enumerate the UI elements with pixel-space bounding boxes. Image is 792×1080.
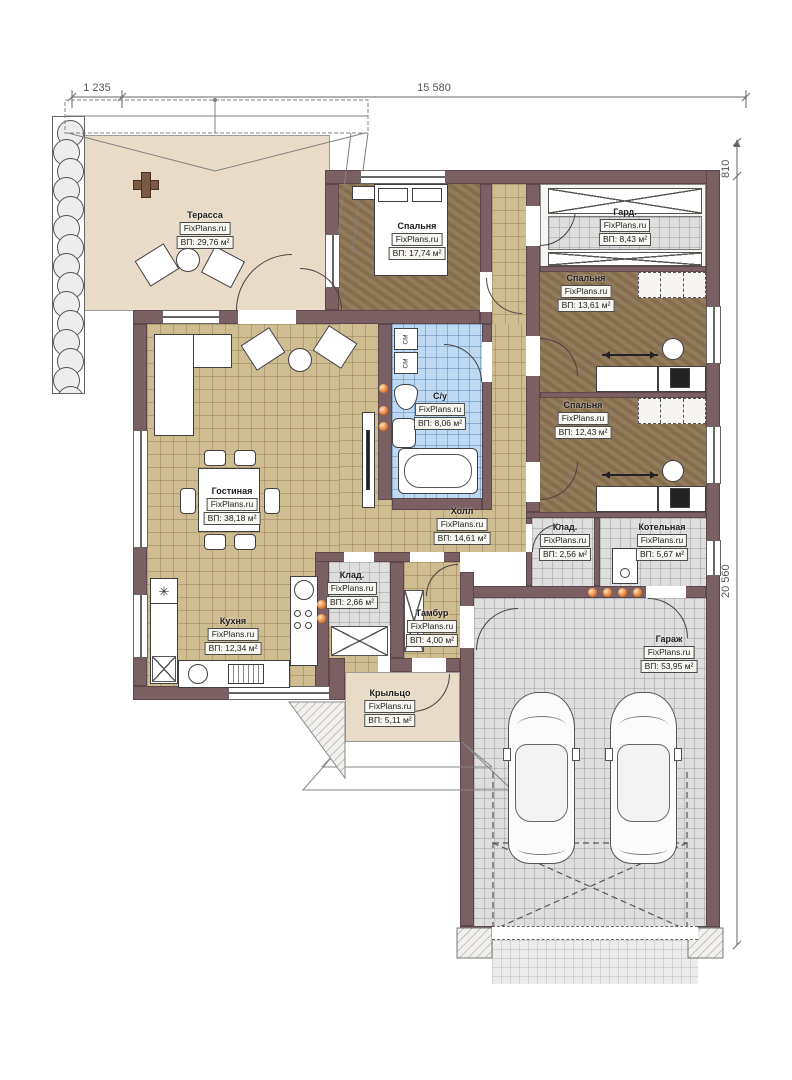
room-area: ВП: 13,61 м² (558, 299, 615, 312)
sink-bowl (188, 664, 208, 684)
dining-chair (234, 450, 256, 466)
room-label-storage-hall: Клад. FixPlans.ru ВП: 2,56 м² (539, 522, 591, 561)
car-rear-line (619, 842, 668, 855)
pillow (378, 188, 408, 202)
downlight-icon (317, 600, 326, 609)
window (706, 426, 721, 484)
bathtub-basin (404, 454, 472, 488)
watermark: FixPlans.ru (208, 628, 259, 641)
wall (594, 518, 600, 586)
room-area: ВП: 2,66 м² (326, 596, 378, 609)
room-name: Спальня (398, 221, 437, 231)
downlight-icon (379, 406, 388, 415)
room-label-vestibule: Тамбур FixPlans.ru ВП: 4,00 м² (406, 608, 458, 647)
dining-chair (204, 450, 226, 466)
door-opening (526, 336, 540, 376)
door-opening (526, 206, 540, 246)
room-area: ВП: 29,76 м² (177, 236, 234, 249)
car-mirror-icon (503, 748, 511, 761)
room-area: ВП: 4,00 м² (406, 634, 458, 647)
dish-rack (228, 664, 264, 684)
room-area: ВП: 12,43 м² (555, 426, 612, 439)
stones-decoration (52, 116, 85, 394)
door-opening (482, 342, 492, 382)
bathroom-sink (392, 418, 416, 448)
room-label-kitchen: Кухня FixPlans.ru ВП: 12,34 м² (205, 616, 262, 655)
watermark: FixPlans.ru (600, 219, 651, 232)
car-roof (617, 744, 670, 822)
sofa (154, 334, 194, 436)
downlight-icon (317, 614, 326, 623)
room-name: Крыльцо (370, 688, 411, 698)
door-opening (526, 462, 540, 502)
room-area: ВП: 5,11 м² (364, 714, 415, 727)
room-area: ВП: 2,56 м² (539, 548, 591, 561)
nightstand (352, 186, 376, 200)
room-area: ВП: 12,34 м² (205, 642, 262, 655)
dining-chair (234, 534, 256, 550)
washing-machine-label: СМ (402, 334, 409, 344)
side-table (288, 348, 312, 372)
car-rear-line (517, 842, 566, 855)
downlight-icon (618, 588, 627, 597)
wardrobe-dashed (638, 272, 706, 298)
watermark: FixPlans.ru (637, 534, 688, 547)
car-mirror-icon (605, 748, 613, 761)
door-opening (238, 310, 296, 324)
watermark: FixPlans.ru (437, 518, 488, 531)
desk-chair (662, 460, 684, 482)
watermark: FixPlans.ru (180, 222, 231, 235)
room-label-living: Гостиная FixPlans.ru ВП: 38,18 м² (204, 486, 261, 525)
room-area: ВП: 14,61 м² (434, 532, 491, 545)
dining-chair (264, 488, 280, 514)
door-opening (410, 552, 444, 562)
room-name: Спальня (567, 273, 606, 283)
dining-chair (204, 534, 226, 550)
washing-machine: СМ (394, 352, 418, 374)
bed (596, 366, 658, 392)
room-name: Гард. (613, 207, 636, 217)
car-hood-line (619, 716, 668, 735)
washing-machine: СМ (394, 328, 418, 350)
stove-burner-icon (305, 610, 312, 617)
room-name: Холл (451, 506, 474, 516)
window (360, 170, 446, 184)
room-area: ВП: 38,18 м² (204, 512, 261, 525)
door-opening (344, 552, 374, 562)
boiler-unit (612, 548, 638, 584)
watermark: FixPlans.ru (415, 403, 466, 416)
kitchen-cabinet (152, 656, 176, 682)
room-name: Кухня (220, 616, 246, 626)
room-name: Терасса (187, 210, 223, 220)
room-area: ВП: 53,95 м² (641, 660, 698, 673)
storage-closet (331, 626, 388, 656)
boiler-dial-icon (620, 568, 630, 578)
window (133, 430, 148, 548)
door-opening (412, 658, 446, 672)
car-mirror-icon (572, 748, 580, 761)
wall (390, 562, 404, 658)
washing-machine-label: СМ (402, 358, 409, 368)
watermark: FixPlans.ru (207, 498, 258, 511)
room-name: Котельная (638, 522, 685, 532)
bed (596, 486, 658, 512)
monitor-icon (670, 368, 690, 388)
wall (526, 512, 706, 518)
room-name: Клад. (340, 570, 364, 580)
window (706, 540, 721, 576)
downlight-icon (603, 588, 612, 597)
car-roof (515, 744, 568, 822)
desk-chair (662, 338, 684, 360)
coffee-table (176, 248, 200, 272)
pillow (412, 188, 442, 202)
garage-door-opening (492, 926, 698, 940)
watermark: FixPlans.ru (407, 620, 458, 633)
room-label-bathroom: С/у FixPlans.ru ВП: 8,06 м² (414, 391, 466, 430)
watermark: FixPlans.ru (644, 646, 695, 659)
downlight-icon (379, 422, 388, 431)
room-label-wardrobe: Гард. FixPlans.ru ВП: 8,43 м² (599, 207, 651, 246)
room-label-hall: Холл FixPlans.ru ВП: 14,61 м² (434, 506, 491, 545)
kitchen-sink (294, 580, 314, 600)
car-top-view (508, 692, 575, 864)
dimension-right-top: 810 (720, 138, 732, 178)
fridge: ✳ (150, 578, 178, 604)
room-name: Спальня (564, 400, 603, 410)
downlight-icon (588, 588, 597, 597)
room-label-porch: Крыльцо FixPlans.ru ВП: 5,11 м² (364, 688, 415, 727)
room-label-bedroom-top: Спальня FixPlans.ru ВП: 17,74 м² (389, 221, 446, 260)
room-name: Клад. (553, 522, 577, 532)
car-top-view (610, 692, 677, 864)
stove-burner-icon (305, 622, 312, 629)
wardrobe-storage (548, 252, 702, 266)
door-opening (526, 524, 532, 552)
tv-icon (366, 430, 370, 490)
dining-chair (180, 488, 196, 514)
car-mirror-icon (674, 748, 682, 761)
watermark: FixPlans.ru (540, 534, 591, 547)
room-area: ВП: 5,67 м² (636, 548, 688, 561)
wardrobe-dashed (638, 398, 706, 424)
dimension-top-main: 15 580 (384, 82, 484, 94)
room-label-storage-kitchen: Клад. FixPlans.ru ВП: 2,66 м² (326, 570, 378, 609)
watermark: FixPlans.ru (327, 582, 378, 595)
door-opening (646, 586, 686, 598)
dimension-top-left: 1 235 (72, 82, 122, 94)
room-label-terrace: Терасса FixPlans.ru ВП: 29,76 м² (177, 210, 234, 249)
window (162, 310, 220, 324)
window (133, 594, 148, 658)
stove-burner-icon (294, 622, 301, 629)
door-opening (460, 606, 474, 648)
room-name: С/у (433, 391, 447, 401)
room-label-garage: Гараж FixPlans.ru ВП: 53,95 м² (641, 634, 698, 673)
room-area: ВП: 8,43 м² (599, 233, 651, 246)
dimension-arrow (602, 354, 658, 356)
grill-icon (141, 172, 151, 198)
room-name: Гостиная (212, 486, 253, 496)
room-label-bedroom-low: Спальня FixPlans.ru ВП: 12,43 м² (555, 400, 612, 439)
dimension-right-side: 20 560 (720, 518, 732, 598)
window (706, 306, 721, 364)
window (228, 686, 330, 700)
driveway (492, 940, 698, 984)
watermark: FixPlans.ru (365, 700, 416, 713)
room-label-bedroom-mid: Спальня FixPlans.ru ВП: 13,61 м² (558, 273, 615, 312)
car-hood-line (517, 716, 566, 735)
room-name: Тамбур (416, 608, 449, 618)
wall (329, 658, 345, 700)
monitor-icon (670, 488, 690, 508)
floor-plan-canvas: ✳ СМ СМ (0, 0, 792, 1080)
dimension-arrow (602, 474, 658, 476)
downlight-icon (379, 384, 388, 393)
downlight-icon (633, 588, 642, 597)
room-area: ВП: 8,06 м² (414, 417, 466, 430)
fridge-star-icon: ✳ (159, 585, 170, 598)
room-area: ВП: 17,74 м² (389, 247, 446, 260)
stove-burner-icon (294, 610, 301, 617)
watermark: FixPlans.ru (561, 285, 612, 298)
room-label-boiler: Котельная FixPlans.ru ВП: 5,67 м² (636, 522, 688, 561)
watermark: FixPlans.ru (392, 233, 443, 246)
watermark: FixPlans.ru (558, 412, 609, 425)
room-name: Гараж (656, 634, 683, 644)
bathtub (398, 448, 478, 494)
